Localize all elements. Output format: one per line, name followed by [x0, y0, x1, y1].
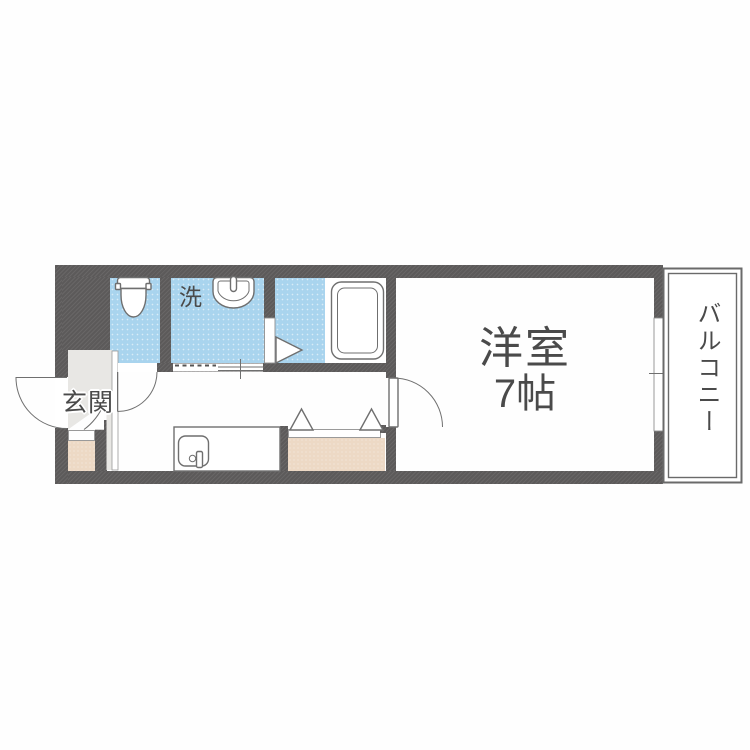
shoe-cabinet-top — [68, 430, 95, 441]
kitchen-faucet-icon — [197, 452, 203, 468]
bedroom-name: 洋室 — [425, 326, 625, 372]
wall-top — [55, 265, 663, 278]
wall-toilet-bottom — [110, 363, 160, 372]
shoe-cabinet — [68, 441, 95, 471]
kitchen-faucet-base — [189, 455, 195, 461]
bedroom-size: 7帖 — [425, 372, 625, 417]
floorplan-symbols — [0, 0, 750, 750]
balcony-label: バルコニー — [689, 301, 724, 446]
bedroom-door-opening — [386, 378, 396, 427]
kitchen-sink-icon — [179, 436, 209, 466]
washing-machine-label: 洗 — [175, 279, 206, 316]
wall-closet-right — [386, 427, 396, 471]
wall-corridor-top — [157, 363, 396, 372]
closet-floor — [288, 438, 385, 471]
bathtub-platform — [325, 277, 386, 363]
wall-washroom-bath — [264, 277, 275, 318]
wall-entrance-stub — [95, 420, 107, 471]
bedroom-label: 洋室 7帖 — [425, 326, 625, 417]
entrance-label: 玄関 — [52, 383, 124, 419]
floorplan-canvas: 玄関 洗 洋室 7帖 バルコニー — [0, 0, 750, 750]
kitchen-counter — [174, 427, 280, 471]
toilet-room-floor — [110, 277, 160, 363]
bedroom-door-leaf — [389, 378, 398, 427]
wall-bath-bedroom — [386, 277, 396, 378]
wall-counter-closet — [280, 426, 288, 471]
wall-bottom — [55, 471, 663, 484]
wall-right — [654, 277, 663, 471]
closet-door-track — [288, 429, 381, 438]
wall-corner-block — [62, 277, 110, 351]
wall-toilet-washroom — [160, 277, 171, 363]
bath-door-opening — [265, 318, 276, 363]
closet-fold-door-left — [290, 409, 313, 430]
